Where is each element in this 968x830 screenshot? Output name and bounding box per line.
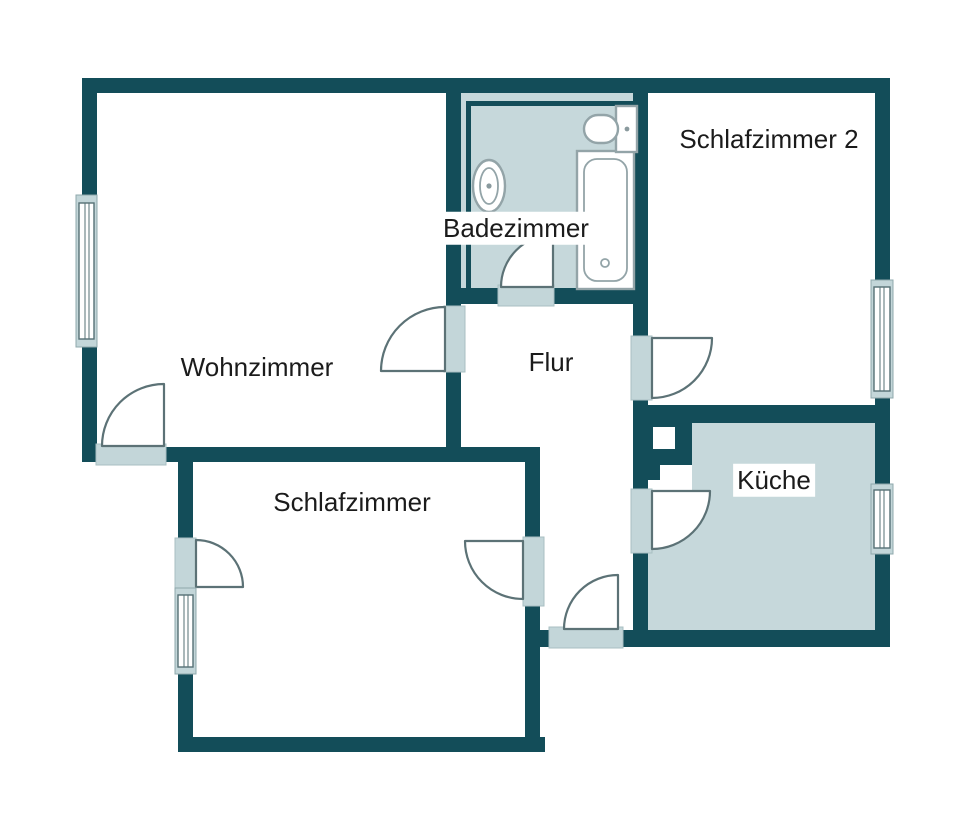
room-label-flur: Flur [525, 346, 578, 379]
threshold-wohnzimmer-balcony [96, 444, 166, 465]
room-label-schlafzimmer2: Schlafzimmer 2 [675, 123, 862, 156]
badezimmer-inner-wall [466, 101, 633, 106]
sink-icon [473, 160, 505, 212]
room-label-kueche: Küche [733, 464, 815, 497]
threshold-entry [549, 627, 623, 648]
badezimmer-inner-wall [466, 101, 471, 288]
threshold-schlafzimmer2 [631, 336, 652, 400]
floor-plan: Wohnzimmer Badezimmer Schlafzimmer 2 Flu… [0, 0, 968, 830]
threshold-wohnzimmer-flur [444, 306, 465, 372]
window-wohnzimmer [76, 195, 97, 347]
wall-outer-top [82, 78, 888, 93]
room-label-wohnzimmer: Wohnzimmer [177, 351, 338, 384]
door-arc-wohnzimmer-balcony [102, 384, 164, 446]
door-arc-schlafzimmer-left [196, 540, 243, 587]
room-label-badezimmer: Badezimmer [439, 212, 593, 245]
door-arc-schlafzimmer2 [652, 338, 712, 398]
window-schlafzimmer [175, 588, 196, 674]
chimney-step [648, 465, 660, 480]
threshold-schlafzimmer-left [175, 538, 196, 589]
window-kueche [871, 484, 893, 554]
chimney-shaft [653, 427, 675, 449]
wall-wohnzimmer-right [446, 78, 461, 462]
door-arc-schlafzimmer-flur [465, 541, 523, 599]
wall-schlafzimmer2-kueche [648, 405, 890, 423]
door-arc-entry [564, 575, 618, 629]
threshold-badezimmer [498, 285, 554, 306]
threshold-kueche [631, 489, 652, 553]
wall-schlafzimmer-bottom [178, 737, 545, 752]
window-schlafzimmer2 [871, 280, 893, 398]
room-label-schlafzimmer: Schlafzimmer [269, 486, 434, 519]
threshold-schlafzimmer-flur [523, 537, 544, 606]
door-arc-wohnzimmer-flur [381, 307, 445, 371]
